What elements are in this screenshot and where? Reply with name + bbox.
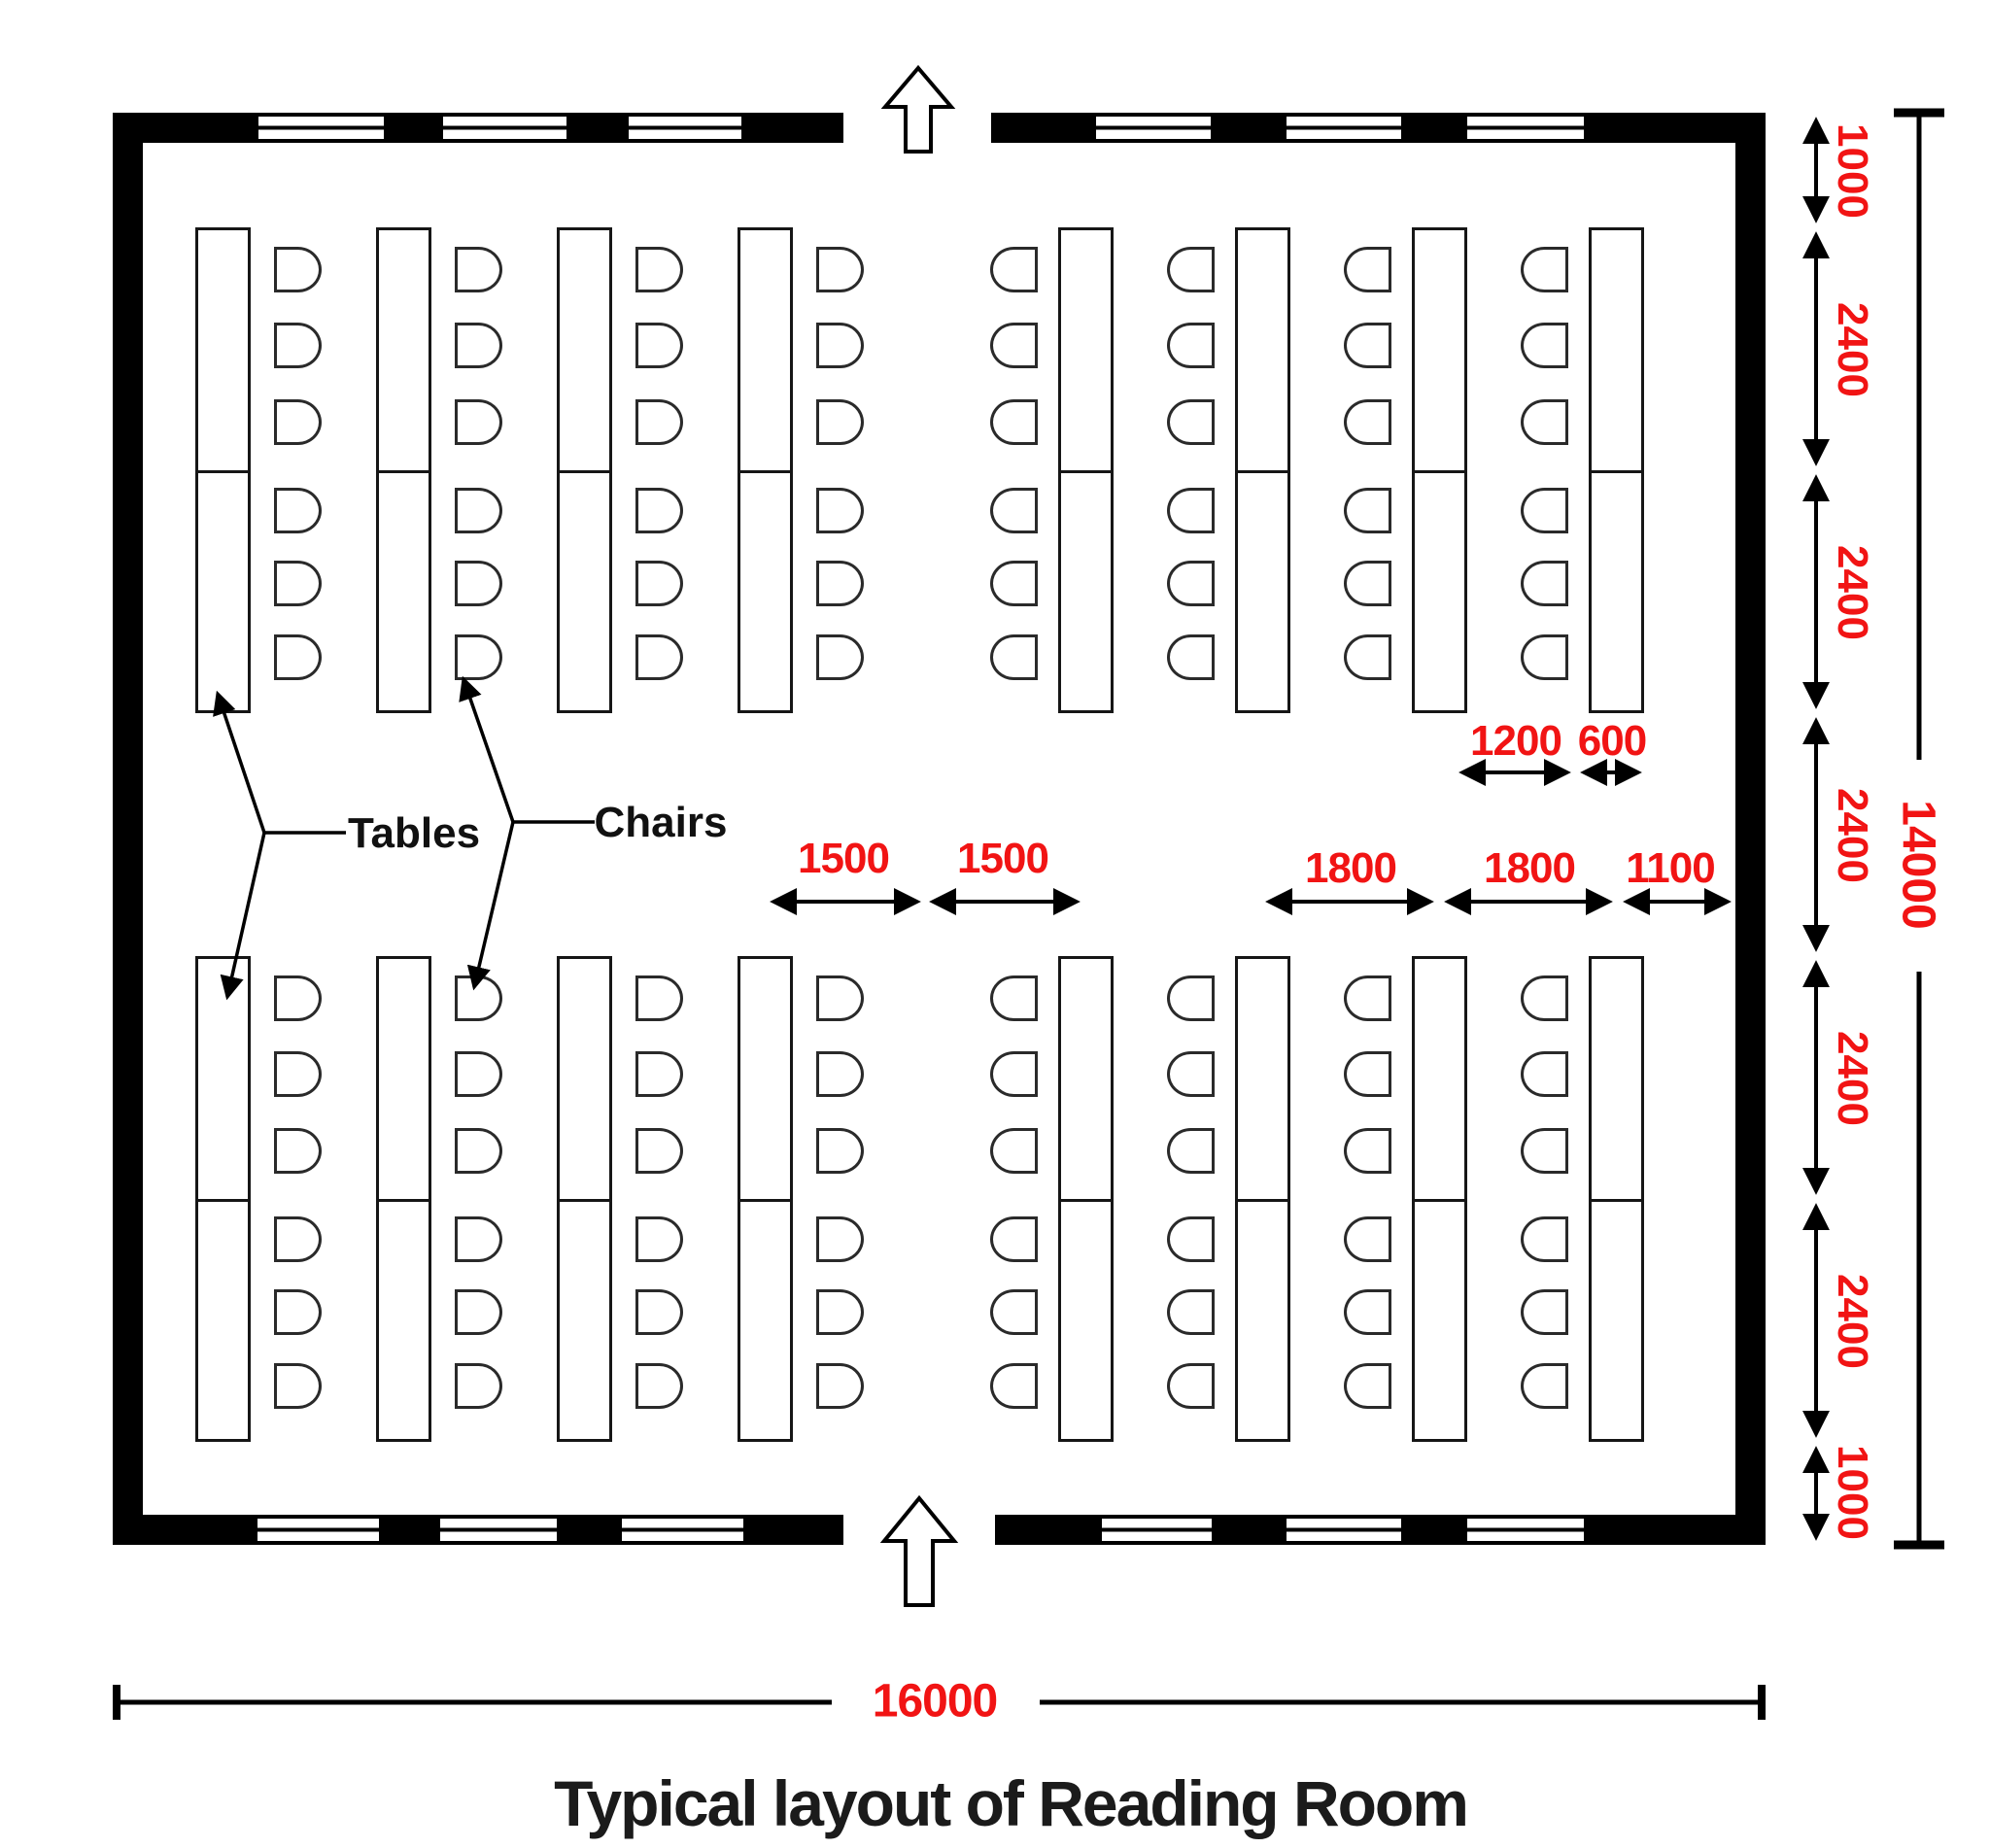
dim-label-edge-margin: 1100 [1626, 844, 1714, 893]
dim-label-overall-height: 14000 [1892, 800, 1945, 929]
dim-label-row-2: 2400 [1828, 545, 1876, 640]
dim-label-overall-width: 16000 [873, 1675, 997, 1728]
door-arrow-icons [884, 68, 954, 1605]
dim-label-row-4: 2400 [1828, 1274, 1876, 1369]
dim-label-aisle-left: 1500 [798, 835, 889, 883]
bottom-entry-arrow-icon [884, 1498, 954, 1605]
dim-label-bottom-margin: 1000 [1828, 1445, 1876, 1540]
dimension-annotations [0, 0, 1990, 1848]
dim-label-aisle-right: 1500 [957, 835, 1048, 883]
tables-label: Tables [348, 809, 480, 858]
dim-label-bay-1: 1800 [1305, 844, 1396, 893]
dim-label-row-1: 2400 [1828, 302, 1876, 397]
tables-leader-lines [218, 694, 346, 997]
dim-label-mid-aisle: 2400 [1828, 788, 1876, 883]
dim-label-row-3: 2400 [1828, 1031, 1876, 1126]
top-entry-arrow-icon [885, 68, 951, 152]
plan-title: Typical layout of Reading Room [554, 1766, 1467, 1840]
dim-label-bay-2: 1800 [1484, 844, 1575, 893]
chairs-leader-lines [463, 679, 595, 987]
dim-label-table-width: 600 [1578, 717, 1646, 766]
dim-label-chair-gap: 1200 [1470, 717, 1561, 766]
dim-label-top-margin: 1000 [1828, 123, 1876, 219]
chairs-label: Chairs [595, 799, 728, 847]
floor-plan-canvas: 1000 2400 2400 2400 2400 2400 1000 14000… [0, 0, 1990, 1848]
